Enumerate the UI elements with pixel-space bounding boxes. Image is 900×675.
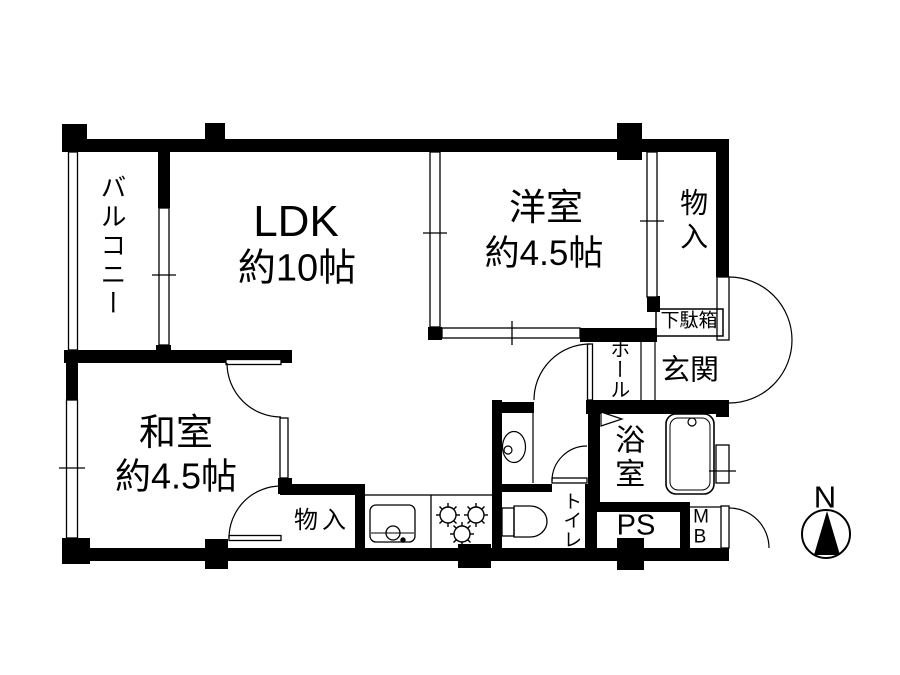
- compass-icon: [802, 510, 850, 558]
- room-size-ldk: 約10帖: [238, 248, 356, 289]
- kitchen-counter: [363, 495, 493, 552]
- room-label-shoe-cabinet: 下駄箱: [660, 312, 717, 333]
- toilet-icon: [502, 506, 547, 537]
- compass-north-label: N: [814, 480, 836, 513]
- floor-plan: バルコニー LDK 約10帖 洋室 約4.5帖 物入 下駄箱 ホール 玄関 和室…: [0, 0, 900, 675]
- room-size-japanese-room: 約4.5帖: [115, 458, 237, 497]
- floor-plan-drawing: [0, 0, 900, 675]
- room-label-ldk: LDK: [253, 198, 339, 246]
- room-label-bathroom: 浴室: [610, 424, 642, 492]
- walls-layer: [62, 123, 729, 570]
- room-label-pipe-space: PS: [617, 510, 656, 541]
- room-label-japanese-room: 和室: [139, 413, 213, 453]
- meter-box-label-m: M: [693, 508, 709, 529]
- room-label-storage-upper: 物入: [677, 188, 707, 256]
- meter-box-label-b: B: [694, 528, 707, 549]
- room-label-balcony: バルコニー: [98, 174, 126, 319]
- wash-basin-icon: [503, 432, 526, 463]
- kitchen-sink-icon: [370, 505, 415, 542]
- compass-needle: [814, 511, 840, 555]
- room-label-storage-lower: 物入: [294, 508, 350, 534]
- room-label-toilet: トイレ: [560, 492, 581, 549]
- room-label-entrance: 玄関: [661, 355, 719, 386]
- bathtub-icon: [666, 414, 714, 494]
- room-label-hall: ホール: [606, 339, 628, 399]
- room-size-western-room: 約4.5帖: [485, 235, 604, 273]
- room-label-western-room: 洋室: [509, 188, 583, 228]
- stove-burners-icon: [436, 503, 488, 546]
